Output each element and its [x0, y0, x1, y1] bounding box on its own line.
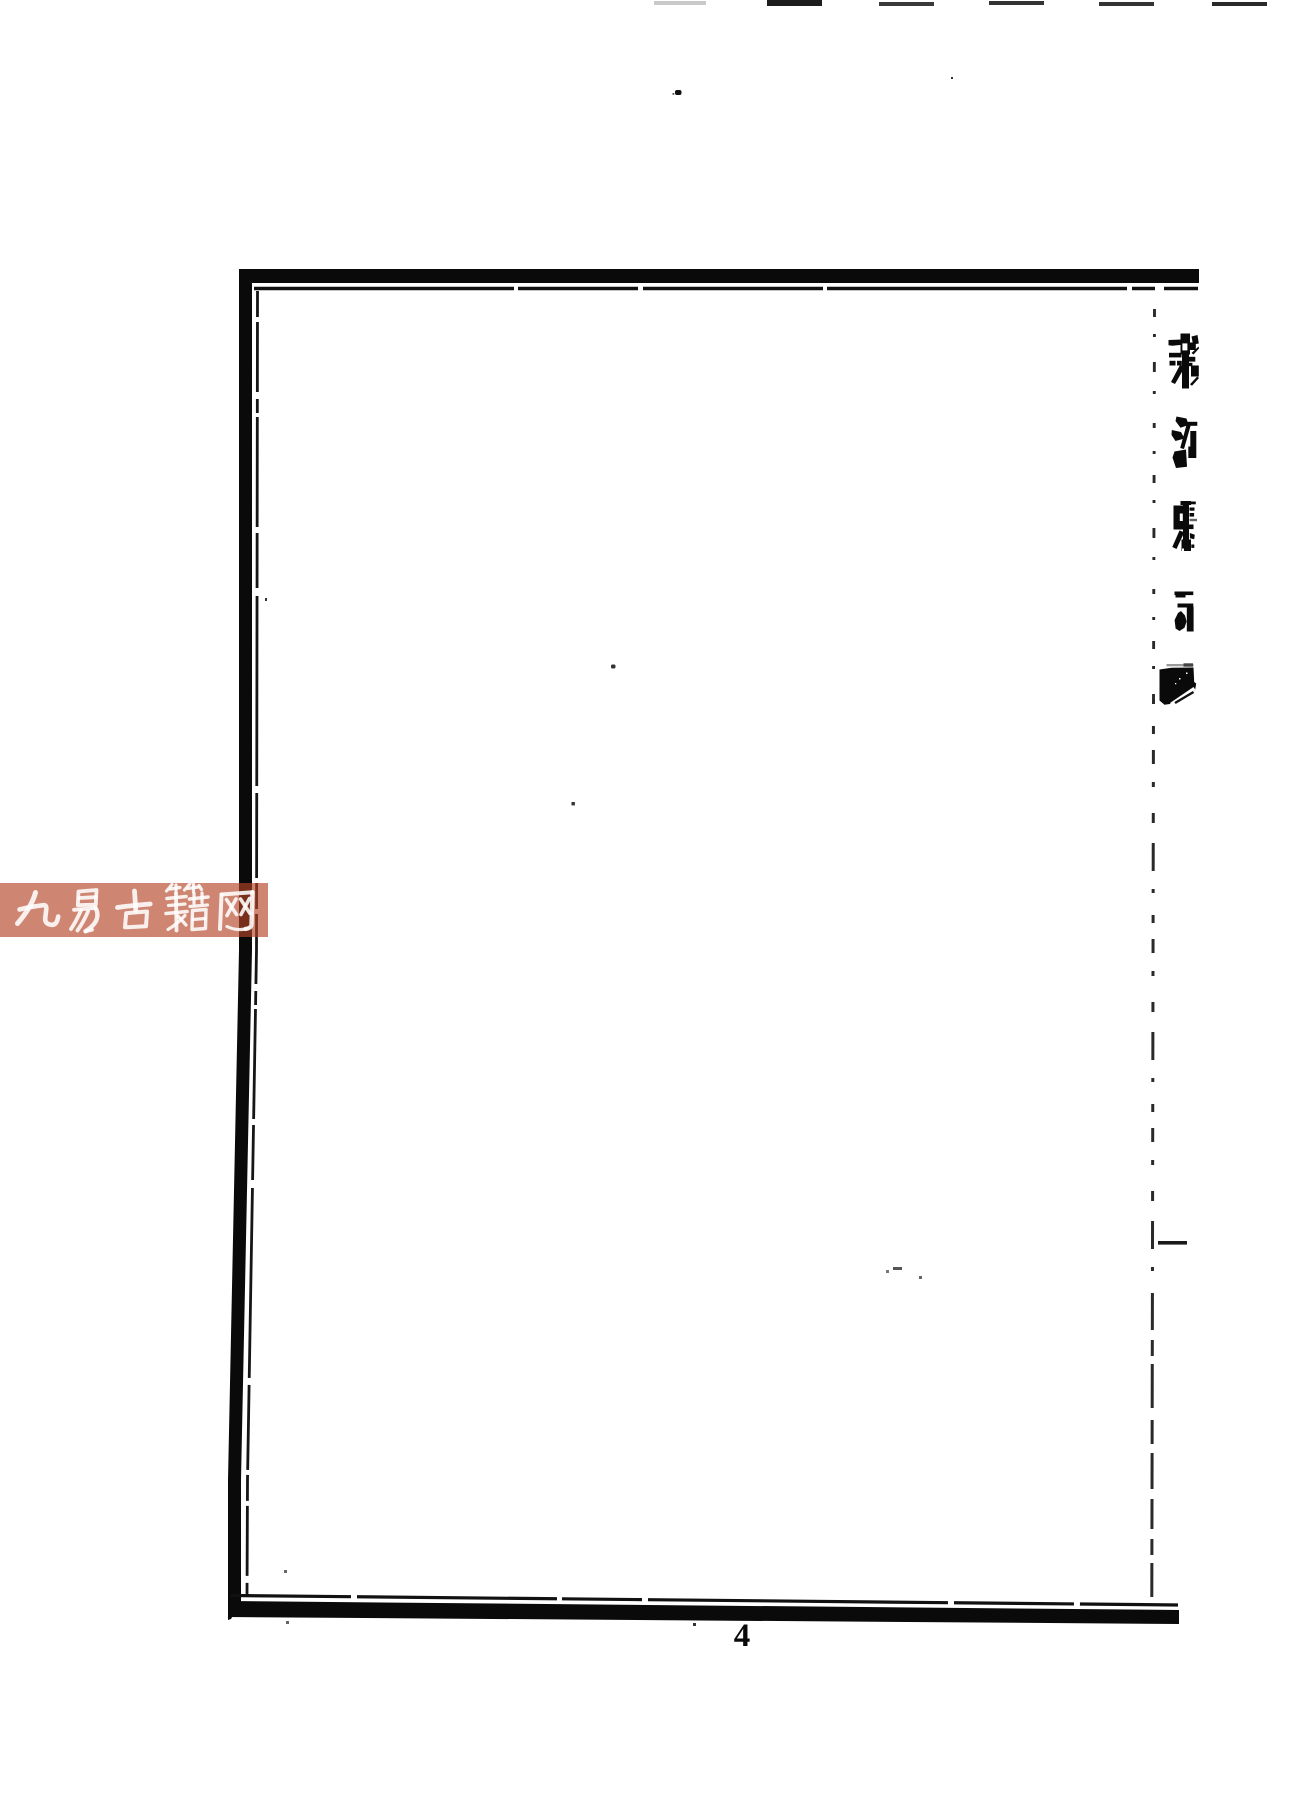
svg-text:4: 4 [734, 1618, 751, 1654]
